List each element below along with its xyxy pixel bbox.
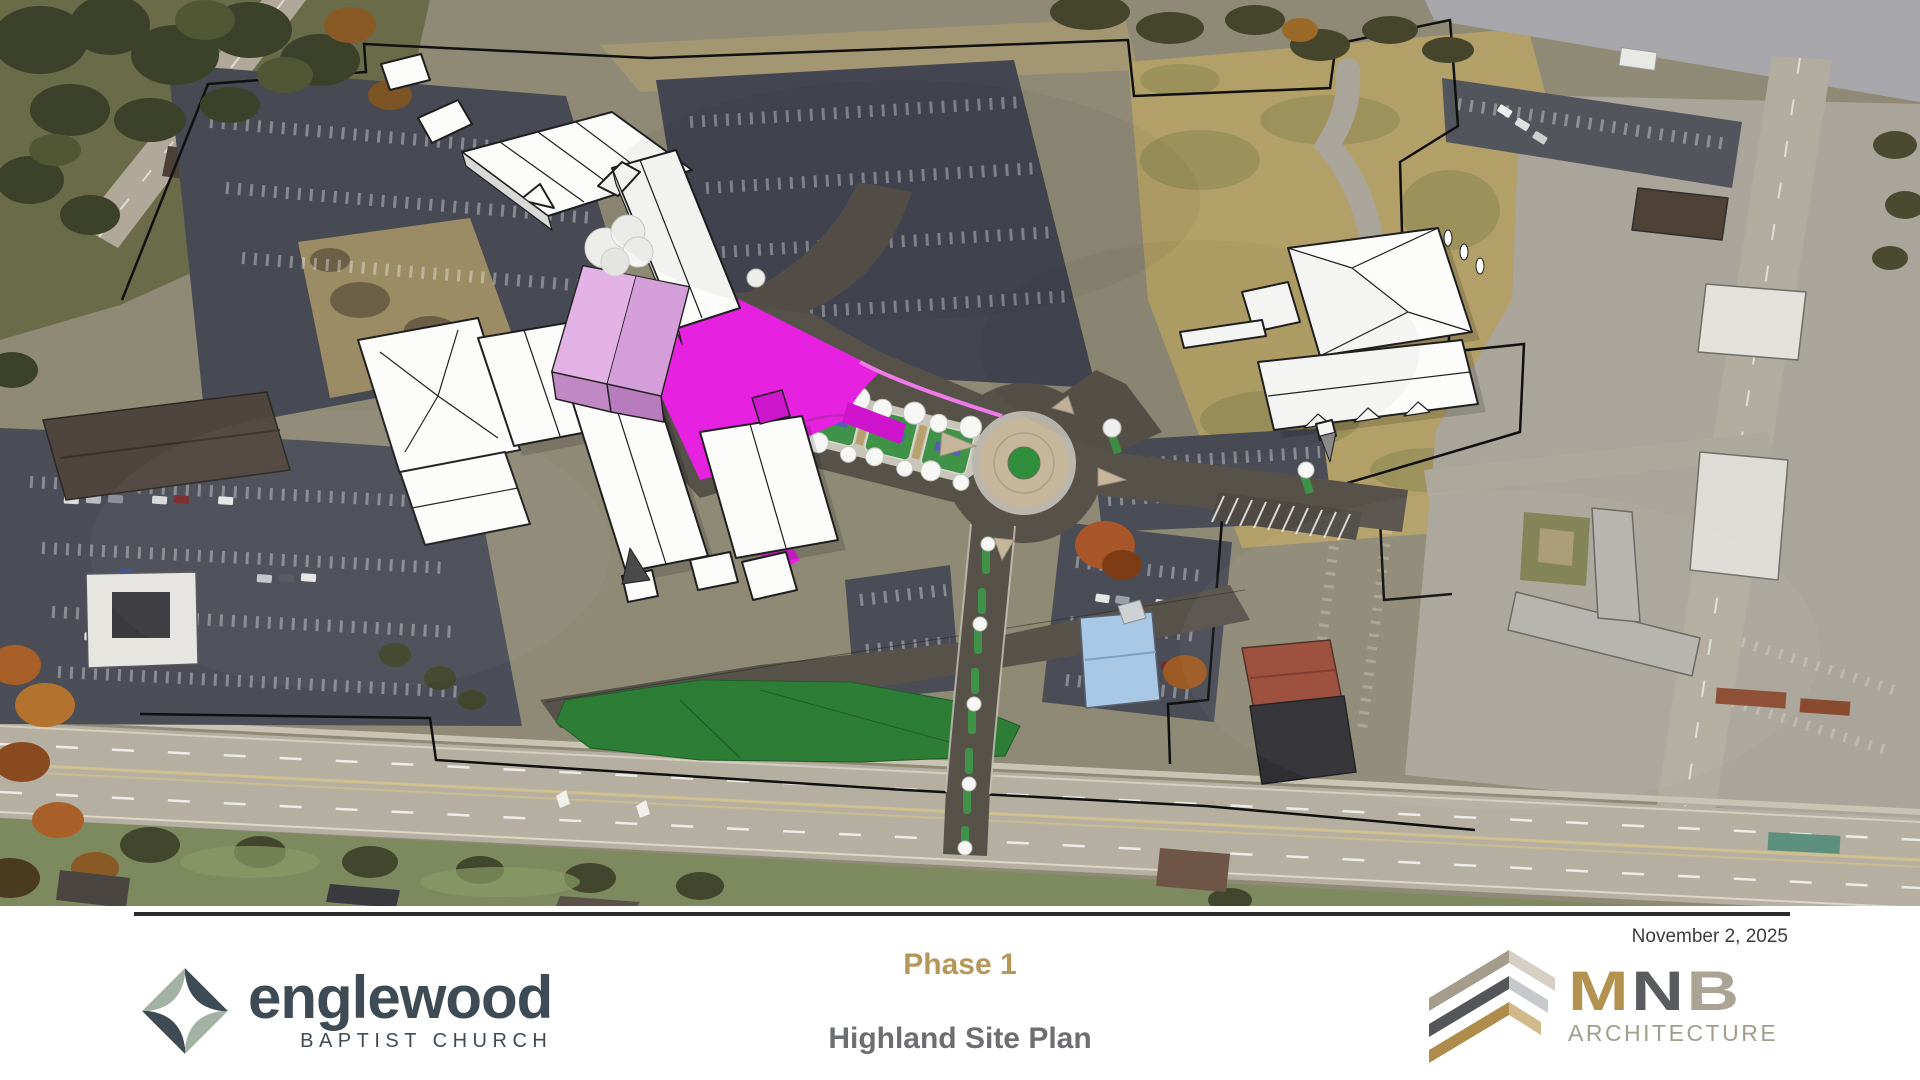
mnb-letter-m: M [1568, 959, 1631, 1022]
presentation-slide: November 2, 2025 Phase 1 Highland Site P… [0, 0, 1920, 1080]
mnb-architecture-logo: MNB ARCHITECTURE [1424, 948, 1778, 1064]
englewood-wordmark: englewood BAPTIST CHURCH [248, 969, 552, 1053]
mnb-letter-b: B [1686, 959, 1741, 1022]
englewood-tagline: BAPTIST CHURCH [248, 1030, 552, 1053]
mnb-wordmark: MNB ARCHITECTURE [1568, 966, 1778, 1047]
aerial-site-plan [0, 0, 1920, 906]
englewood-diamond-icon [136, 962, 234, 1060]
site-plan-rendering [0, 0, 1920, 906]
slide-footer: November 2, 2025 Phase 1 Highland Site P… [0, 906, 1920, 1080]
mnb-tagline: ARCHITECTURE [1568, 1020, 1778, 1047]
englewood-word: englewood [248, 969, 552, 1026]
mnb-chevrons-icon [1424, 948, 1556, 1064]
mnb-letters: MNB [1568, 966, 1841, 1016]
englewood-logo: englewood BAPTIST CHURCH [136, 962, 552, 1060]
mnb-letter-n: N [1631, 959, 1686, 1022]
